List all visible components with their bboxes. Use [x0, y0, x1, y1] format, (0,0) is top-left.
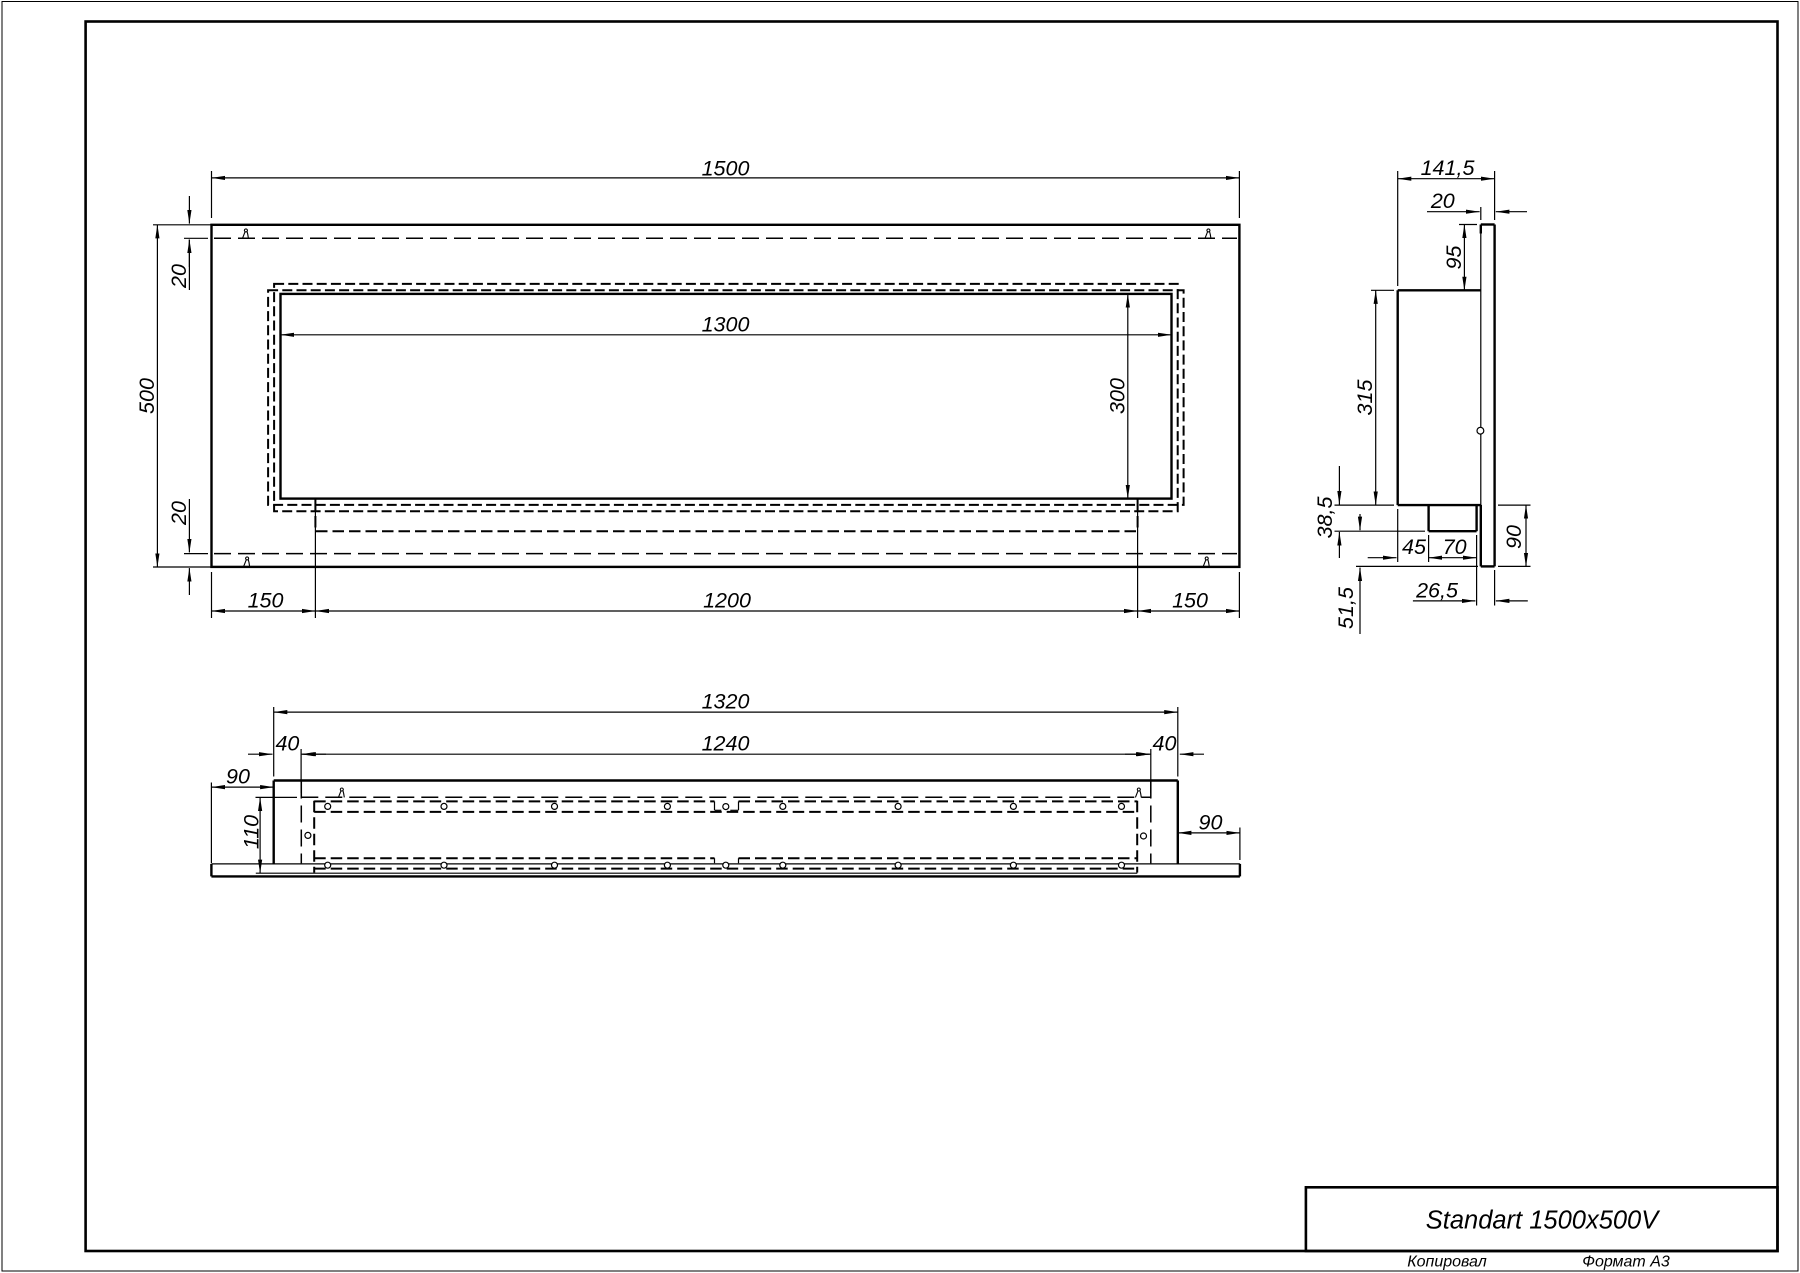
svg-text:110: 110 [240, 815, 264, 849]
svg-text:Standart 1500x500V: Standart 1500x500V [1426, 1207, 1661, 1235]
svg-text:26,5: 26,5 [1415, 578, 1459, 602]
svg-text:38,5: 38,5 [1313, 496, 1337, 539]
svg-text:45: 45 [1402, 535, 1427, 559]
svg-text:315: 315 [1353, 379, 1377, 416]
svg-text:Формат А3: Формат А3 [1582, 1254, 1670, 1271]
svg-text:95: 95 [1442, 245, 1466, 270]
svg-text:1300: 1300 [702, 312, 750, 336]
svg-text:1500: 1500 [702, 156, 750, 180]
svg-text:90: 90 [226, 765, 250, 789]
svg-text:141,5: 141,5 [1421, 156, 1476, 180]
svg-text:90: 90 [1199, 810, 1223, 834]
svg-text:1320: 1320 [702, 690, 750, 714]
svg-text:Копировал: Копировал [1407, 1254, 1487, 1271]
svg-text:40: 40 [1153, 732, 1177, 756]
svg-text:51,5: 51,5 [1334, 586, 1358, 629]
svg-text:90: 90 [1502, 525, 1526, 549]
svg-text:150: 150 [1172, 589, 1208, 613]
svg-text:1200: 1200 [703, 589, 751, 613]
svg-text:150: 150 [248, 589, 284, 613]
svg-text:20: 20 [167, 264, 191, 289]
svg-text:500: 500 [135, 378, 159, 414]
svg-text:70: 70 [1443, 535, 1467, 559]
svg-text:20: 20 [1430, 189, 1455, 213]
svg-text:20: 20 [167, 501, 191, 526]
svg-text:1240: 1240 [702, 732, 750, 756]
svg-text:300: 300 [1105, 378, 1129, 414]
svg-text:40: 40 [275, 732, 299, 756]
